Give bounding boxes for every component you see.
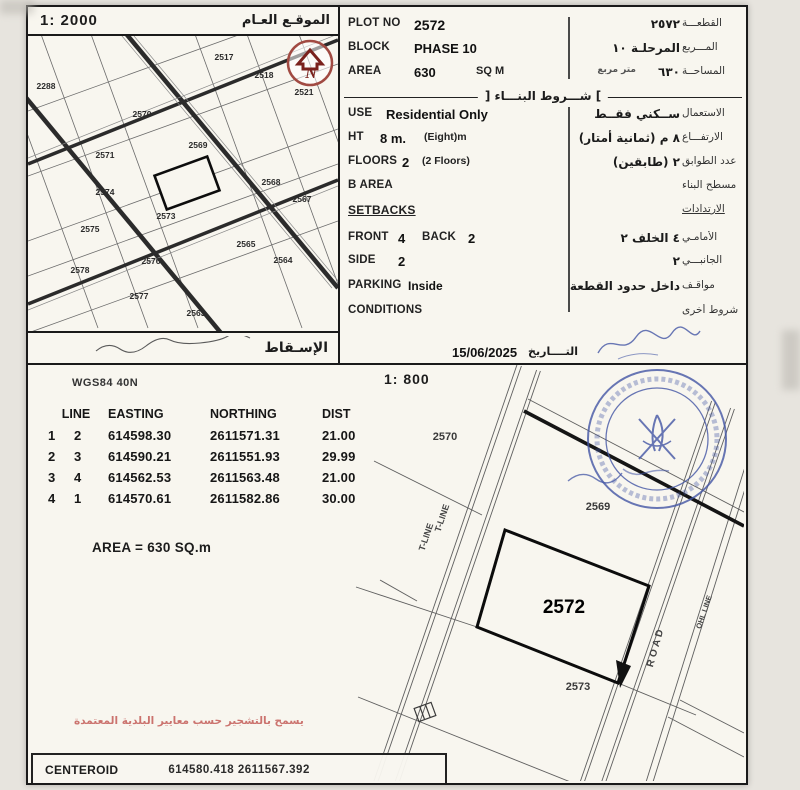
- area-arabic-note: متر مربع: [597, 65, 636, 75]
- overview-title-arabic: الموقـع العـام: [242, 13, 330, 28]
- overview-scale-label: 1: 2000: [40, 12, 98, 29]
- coordinates-table-row: 12614598.302611571.3121.00: [48, 425, 378, 446]
- municipality-note-red: يسمح بالتشجير حسب معايير البلدية المعتمد…: [74, 715, 304, 727]
- floors-value: 2: [402, 155, 409, 170]
- row-setbacks: SETBACKS الارتدادات: [340, 203, 746, 223]
- coordinates-table: LINE EASTING NORTHING DIST 12614598.3026…: [48, 403, 378, 509]
- plot-no-arabic-value: ٢٥٧٢: [651, 17, 680, 31]
- row-height: HT 8 m. (Eight)m ٨ م (ثمانية أمتار) الار…: [340, 131, 746, 151]
- floors-arabic-label: عدد الطوابق: [682, 155, 744, 167]
- area-value: 630: [414, 65, 436, 80]
- overview-plot-number: 2574: [96, 187, 115, 197]
- area-unit: SQ M: [476, 65, 504, 77]
- height-label: HT: [348, 131, 364, 143]
- site-plan-scale-label: 1: 800: [384, 371, 430, 387]
- building-conditions-title: ] شـــروط البنـــاء [: [478, 89, 608, 103]
- built-area-arabic-label: مسطح البناء: [682, 179, 744, 191]
- use-arabic-value: ســكني فقــط: [594, 107, 680, 121]
- overview-plot-number: 2577: [130, 291, 149, 301]
- official-stamp: [588, 370, 726, 508]
- overview-footer: الإسـقاط: [28, 331, 338, 363]
- floors-note: (2 Floors): [422, 155, 470, 167]
- building-conditions-divider: ] شـــروط البنـــاء [: [340, 89, 746, 105]
- height-note: (Eight)m: [424, 131, 467, 143]
- coordinates-table-row: 34614562.532611563.4821.00: [48, 467, 378, 488]
- parking-arabic-value: داخل حدود القطعة: [570, 279, 680, 293]
- north-arrow-icon: N: [288, 41, 332, 85]
- overview-plot-number: 2575: [81, 224, 100, 234]
- conditions-arabic-label: شروط أخرى: [682, 304, 744, 316]
- block-value: PHASE 10: [414, 41, 477, 56]
- overview-plot-number: 2570: [133, 109, 152, 119]
- side-arabic-value: ٢: [673, 254, 680, 268]
- parking-label: PARKING: [348, 279, 402, 291]
- overview-map-drawing: N: [28, 36, 338, 331]
- parking-arabic-label: مواقـف: [682, 279, 744, 291]
- coordinates-table-row: 41614570.612611582.8630.00: [48, 488, 378, 509]
- signature-scribble: [588, 317, 708, 365]
- svg-text:N: N: [304, 65, 318, 82]
- back-value: 2: [468, 231, 475, 246]
- setbacks-arabic-label: الارتدادات: [682, 203, 744, 215]
- floors-arabic-value: ٢ (طابقين): [613, 155, 680, 169]
- overview-plot-number: 2565: [237, 239, 256, 249]
- front-label: FRONT: [348, 231, 389, 243]
- side-label: SIDE: [348, 254, 376, 266]
- overview-plot-number: 2563: [187, 308, 206, 318]
- site-plan-subject-plot-number: 2572: [543, 597, 585, 619]
- overview-plot-number: 2517: [215, 52, 234, 62]
- overview-plot-number: 2576: [142, 256, 161, 266]
- height-arabic-value: ٨ م (ثمانية أمتار): [579, 131, 680, 145]
- site-plan-plot-number: 2573: [566, 681, 590, 693]
- height-value: 8 m.: [380, 131, 406, 146]
- plot-no-arabic-label: القطعـــة: [682, 17, 744, 29]
- overview-plot-number: 2564: [274, 255, 293, 265]
- floors-label: FLOORS: [348, 155, 397, 167]
- plot-no-label: PLOT NO: [348, 17, 401, 29]
- parking-value: Inside: [408, 279, 443, 293]
- overview-plot-number: 2567: [293, 194, 312, 204]
- area-arabic-label: المساحــة: [682, 65, 744, 77]
- row-plot-no: PLOT NO 2572 ٢٥٧٢ القطعـــة: [340, 17, 746, 37]
- site-plan-panel: 1: 800 WGS84 40N LINE EASTING NORTHING D…: [26, 365, 748, 785]
- site-plan-plot-number: 2570: [433, 431, 457, 443]
- plot-info-panel: PLOT NO 2572 ٢٥٧٢ القطعـــة BLOCK PHASE …: [340, 5, 748, 365]
- scanned-survey-document: { "colors":{"ink":"#1a1a1a","stamp_blue"…: [0, 0, 800, 790]
- scan-smudge: [0, 0, 34, 14]
- overview-map: N 22882517251825212570256925712568256725…: [28, 36, 338, 331]
- scan-smudge: [782, 330, 800, 390]
- overview-header: 1: 2000 الموقـع العـام: [28, 7, 338, 36]
- setbacks-label: SETBACKS: [348, 203, 416, 217]
- date-value: 15/06/2025: [452, 345, 517, 360]
- block-arabic-value: المرحلـة ١٠: [612, 41, 680, 55]
- overview-plot-number: 2578: [71, 265, 90, 275]
- front-arabic-value: ٤ الخلف ٢: [621, 231, 680, 245]
- row-block: BLOCK PHASE 10 المرحلـة ١٠ المـــربع: [340, 41, 746, 61]
- front-value: 4: [398, 231, 405, 246]
- site-plan-plot-number: 2569: [586, 501, 610, 513]
- row-area: AREA 630 SQ M ٦٣٠ متر مربع المساحــة: [340, 65, 746, 85]
- coordinates-table-rows: 12614598.302611571.3121.0023614590.21261…: [48, 425, 378, 509]
- block-arabic-label: المـــربع: [682, 41, 744, 53]
- overview-plot-number: 2288: [37, 81, 56, 91]
- row-parking: PARKING Inside داخل حدود القطعة مواقـف: [340, 279, 746, 299]
- overview-plot-number: 2568: [262, 177, 281, 187]
- row-side: SIDE 2 ٢ الجانبـــي: [340, 254, 746, 274]
- use-value: Residential Only: [386, 107, 488, 122]
- coordinates-table-row: 23614590.212611551.9329.99: [48, 446, 378, 467]
- projection-label-arabic: الإسـقاط: [264, 340, 328, 356]
- side-value: 2: [398, 254, 405, 269]
- handwritten-mark: [88, 336, 268, 360]
- overview-subject-plot-outline: [155, 157, 220, 210]
- utility-box-symbol: [414, 702, 436, 721]
- overview-map-panel: 1: 2000 الموقـع العـام: [26, 5, 340, 365]
- overview-plot-number: 2518: [255, 70, 274, 80]
- coordinates-table-header: LINE EASTING NORTHING DIST: [48, 403, 378, 425]
- row-floors: FLOORS 2 (2 Floors) ٢ (طابقين) عدد الطوا…: [340, 155, 746, 175]
- date-arabic-label: التــــاريخ: [528, 345, 578, 358]
- centeroid-box: CENTEROID 614580.418 2611567.392: [31, 753, 447, 785]
- datum-label: WGS84 40N: [72, 377, 138, 389]
- use-label: USE: [348, 107, 372, 119]
- height-arabic-label: الارتفـــاع: [682, 131, 744, 143]
- row-front-back: FRONT 4 BACK 2 ٤ الخلف ٢ الأمامـي: [340, 231, 746, 251]
- built-area-label: B AREA: [348, 179, 393, 191]
- computed-area-label: AREA = 630 SQ.m: [92, 540, 211, 555]
- plot-no-value: 2572: [414, 17, 445, 33]
- overview-plot-number: 2573: [157, 211, 176, 221]
- conditions-label: CONDITIONS: [348, 304, 422, 316]
- document-paper: 1: 2000 الموقـع العـام: [26, 5, 748, 785]
- area-label: AREA: [348, 65, 381, 77]
- overview-plot-number: 2571: [96, 150, 115, 160]
- block-label: BLOCK: [348, 41, 390, 53]
- centeroid-value: 614580.418 2611567.392: [168, 764, 309, 776]
- centeroid-label: CENTEROID: [45, 763, 118, 777]
- side-arabic-label: الجانبـــي: [682, 254, 744, 266]
- row-built-area: B AREA مسطح البناء: [340, 179, 746, 199]
- overview-plot-number: 2569: [189, 140, 208, 150]
- use-arabic-label: الاستعمال: [682, 107, 744, 119]
- front-arabic-label: الأمامـي: [682, 231, 744, 243]
- stamp-signature-scribble: [568, 473, 622, 483]
- area-arabic-value: ٦٣٠: [658, 65, 680, 79]
- overview-plot-number: 2521: [295, 87, 314, 97]
- back-label: BACK: [422, 231, 456, 243]
- row-use: USE Residential Only ســكني فقــط الاستع…: [340, 107, 746, 127]
